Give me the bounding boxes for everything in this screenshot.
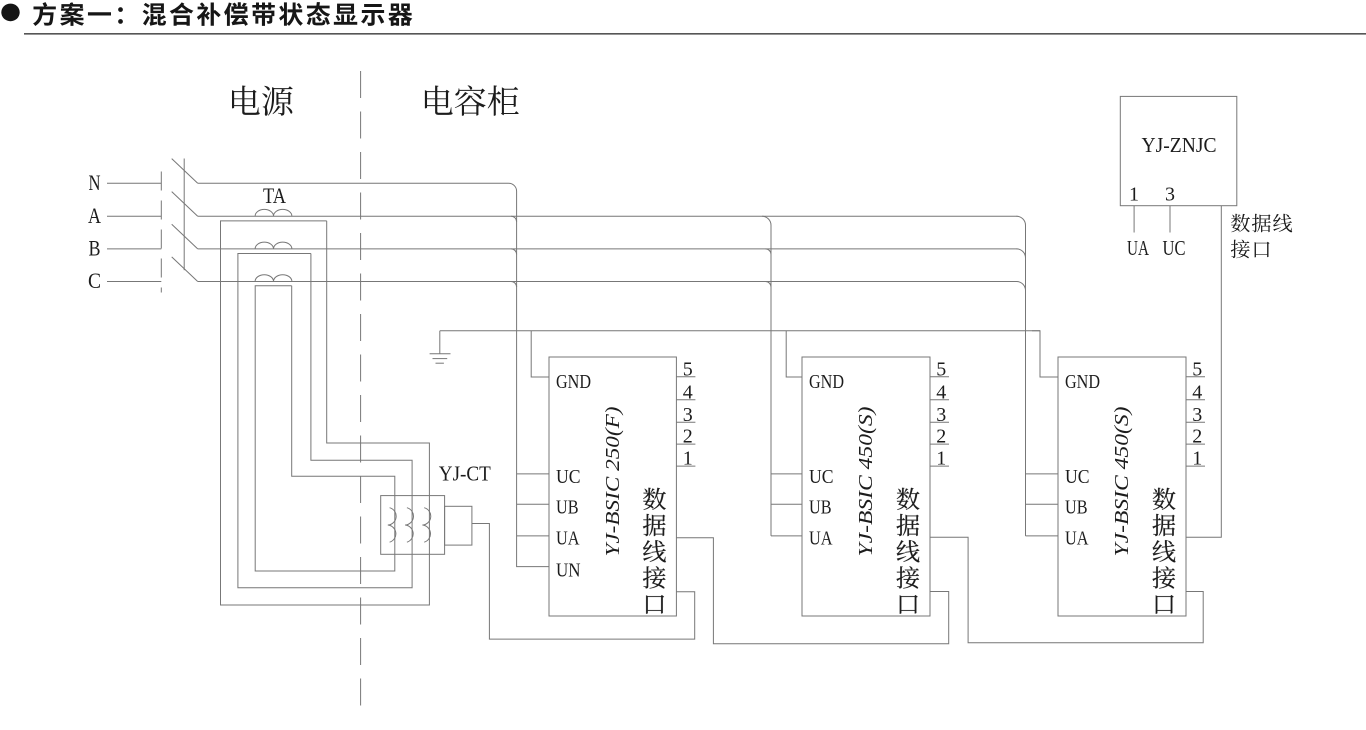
svg-text:UB: UB	[809, 497, 832, 519]
svg-text:UA: UA	[809, 528, 833, 550]
svg-text:5: 5	[936, 358, 946, 380]
svg-text:3: 3	[1192, 404, 1202, 426]
svg-text:UA: UA	[1065, 528, 1089, 550]
svg-text:UB: UB	[556, 497, 579, 519]
svg-text:TA: TA	[263, 183, 286, 208]
svg-text:UB: UB	[1065, 497, 1088, 519]
svg-text:4: 4	[683, 381, 693, 403]
svg-text:2: 2	[683, 426, 693, 448]
svg-text:UA: UA	[556, 528, 580, 550]
svg-text:GND: GND	[556, 371, 591, 393]
svg-text:UC: UC	[1163, 236, 1186, 260]
svg-text:1: 1	[1129, 184, 1139, 206]
svg-text:UC: UC	[556, 466, 581, 488]
svg-text:2: 2	[1192, 426, 1202, 448]
svg-text:UN: UN	[556, 559, 581, 581]
svg-text:YJ-BSIC 450(S): YJ-BSIC 450(S)	[1111, 406, 1133, 556]
svg-text:UC: UC	[809, 466, 834, 488]
svg-text:1: 1	[1192, 448, 1202, 470]
svg-text:1: 1	[683, 448, 693, 470]
svg-text:5: 5	[683, 358, 693, 380]
svg-text:A: A	[88, 203, 101, 228]
svg-text:UA: UA	[1127, 236, 1150, 260]
svg-text:YJ-CT: YJ-CT	[439, 462, 491, 486]
svg-text:YJ-BSIC 250(F): YJ-BSIC 250(F)	[602, 406, 624, 556]
svg-text:4: 4	[936, 381, 946, 403]
svg-text:3: 3	[1165, 184, 1175, 206]
svg-text:5: 5	[1192, 358, 1202, 380]
svg-text:YJ-ZNJC: YJ-ZNJC	[1142, 133, 1217, 157]
svg-text:4: 4	[1192, 381, 1202, 403]
svg-text:2: 2	[936, 426, 946, 448]
svg-text:3: 3	[683, 404, 693, 426]
svg-text:C: C	[88, 268, 101, 293]
svg-text:N: N	[89, 170, 101, 195]
svg-text:GND: GND	[809, 371, 844, 393]
svg-text:UC: UC	[1065, 466, 1090, 488]
svg-text:B: B	[89, 236, 101, 261]
svg-text:3: 3	[936, 404, 946, 426]
svg-text:YJ-BSIC 450(S): YJ-BSIC 450(S)	[855, 406, 877, 556]
svg-text:GND: GND	[1065, 371, 1100, 393]
svg-text:1: 1	[936, 448, 946, 470]
